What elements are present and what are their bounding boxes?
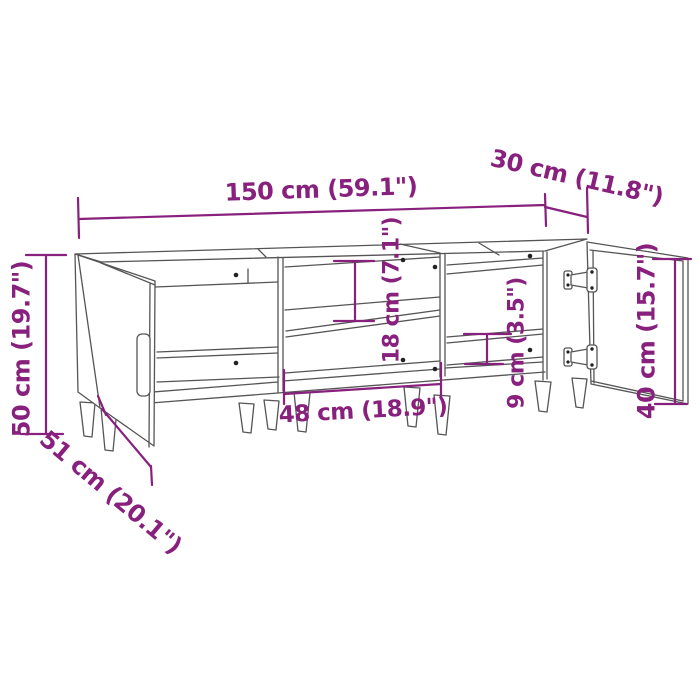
dimension-depth-door-open: 51 cm (20.1")	[34, 396, 187, 560]
top-panel	[75, 239, 587, 262]
door-handle-recess	[137, 334, 150, 396]
dimension-compartment-height-label: 18 cm (7.1")	[380, 217, 405, 363]
dimension-shelf-spacing-label: 9 cm (3.5")	[505, 277, 530, 409]
dimension-depth: 30 cm (11.8")	[488, 144, 666, 233]
hinge-bottom	[564, 345, 597, 369]
dimension-height-label: 50 cm (19.7")	[7, 261, 35, 438]
dimension-width: 150 cm (59.1")	[78, 172, 546, 238]
dimension-depth-label: 30 cm (11.8")	[488, 144, 666, 211]
right-compartment	[447, 251, 547, 380]
dimension-shelf-spacing: 9 cm (3.5")	[464, 277, 530, 409]
middle-compartment	[285, 257, 440, 373]
dimension-diagram: 150 cm (59.1") 30 cm (11.8") 50 cm (19.7…	[0, 0, 700, 700]
dimension-compartment-height: 18 cm (7.1")	[334, 217, 405, 363]
tv-cabinet-drawing: 150 cm (59.1") 30 cm (11.8") 50 cm (19.7…	[0, 0, 700, 700]
dimension-width-label: 150 cm (59.1")	[224, 172, 418, 207]
dimension-height: 50 cm (19.7")	[7, 255, 66, 437]
dimension-door-height-label: 40 cm (15.7")	[632, 243, 660, 420]
left-compartment	[155, 269, 279, 382]
hinge-top	[564, 268, 597, 292]
